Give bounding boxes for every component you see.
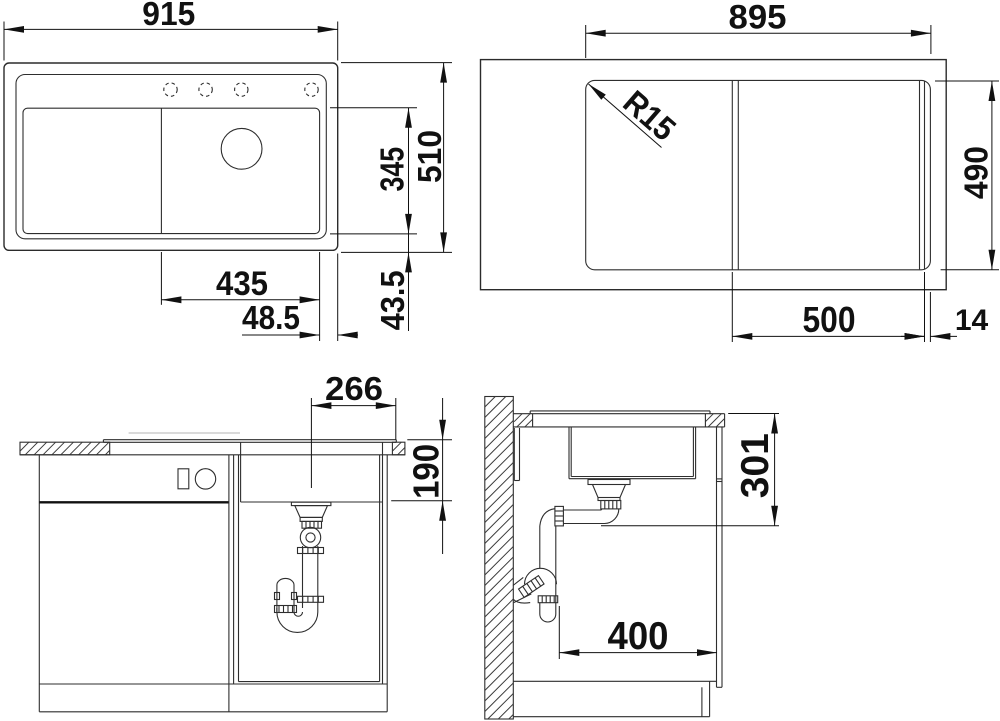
svg-text:490: 490 — [958, 146, 995, 199]
svg-text:301: 301 — [734, 433, 777, 498]
svg-text:435: 435 — [216, 265, 268, 303]
svg-text:266: 266 — [325, 370, 383, 407]
svg-text:500: 500 — [803, 299, 856, 340]
svg-text:510: 510 — [411, 130, 448, 183]
svg-text:400: 400 — [608, 615, 669, 658]
svg-text:43.5: 43.5 — [374, 270, 411, 330]
svg-text:190: 190 — [405, 444, 446, 499]
svg-text:14: 14 — [955, 304, 989, 337]
svg-text:48.5: 48.5 — [242, 299, 300, 336]
svg-text:345: 345 — [373, 147, 410, 192]
svg-text:915: 915 — [142, 0, 195, 32]
svg-text:895: 895 — [729, 0, 787, 37]
